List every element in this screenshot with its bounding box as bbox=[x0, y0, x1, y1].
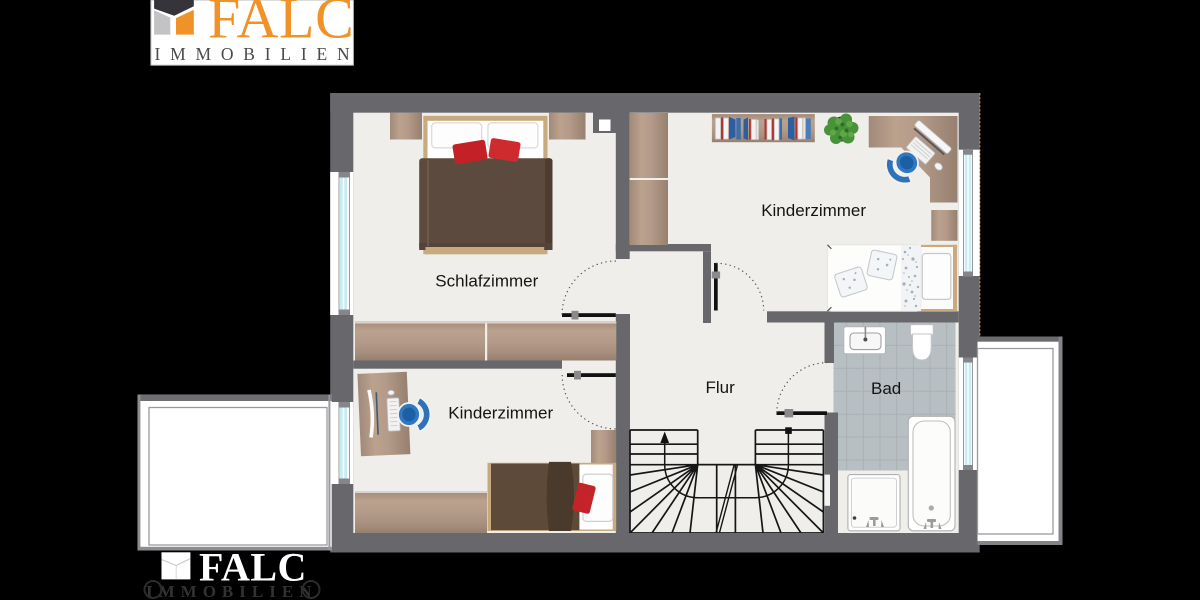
svg-text:IMMOBILIEN: IMMOBILIEN bbox=[146, 582, 317, 600]
svg-text:IMMOBILIEN: IMMOBILIEN bbox=[155, 44, 360, 64]
svg-text:Kinderzimmer: Kinderzimmer bbox=[448, 404, 553, 423]
svg-text:Bad: Bad bbox=[871, 379, 901, 398]
svg-text:Flur: Flur bbox=[706, 378, 736, 397]
svg-text:Kinderzimmer: Kinderzimmer bbox=[761, 201, 866, 220]
svg-text:Schlafzimmer: Schlafzimmer bbox=[435, 272, 538, 291]
